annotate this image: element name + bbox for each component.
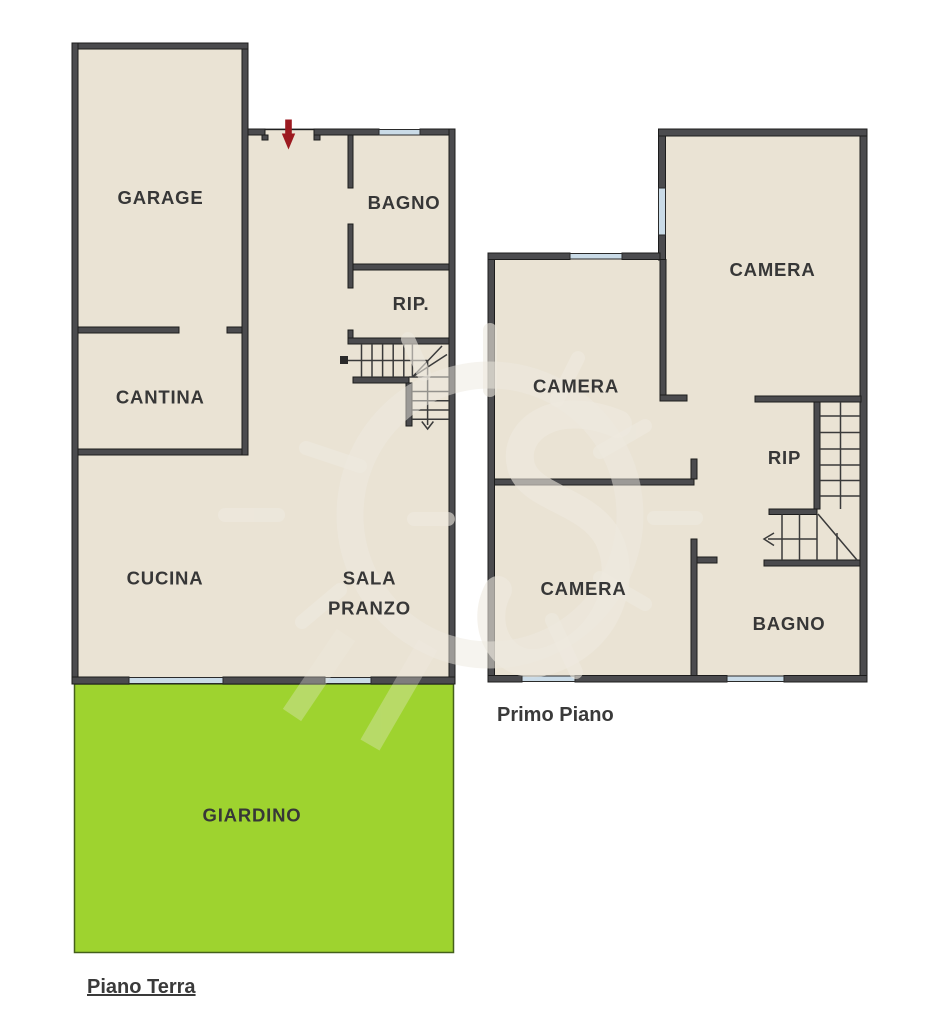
svg-text:GARAGE: GARAGE (118, 187, 204, 208)
svg-text:Piano Terra: Piano Terra (87, 976, 196, 998)
svg-text:PRANZO: PRANZO (328, 598, 411, 619)
svg-text:RIP: RIP (768, 447, 801, 468)
svg-text:CAMERA: CAMERA (533, 376, 619, 397)
svg-text:GIARDINO: GIARDINO (203, 805, 302, 826)
svg-text:RIP.: RIP. (393, 293, 430, 314)
svg-text:BAGNO: BAGNO (368, 192, 441, 213)
svg-text:CAMERA: CAMERA (541, 578, 627, 599)
svg-text:Primo Piano: Primo Piano (497, 704, 614, 726)
svg-text:CUCINA: CUCINA (127, 568, 204, 589)
svg-text:BAGNO: BAGNO (753, 613, 826, 634)
svg-text:CANTINA: CANTINA (116, 387, 205, 408)
svg-text:SALA: SALA (343, 568, 397, 589)
svg-text:CAMERA: CAMERA (730, 259, 816, 280)
